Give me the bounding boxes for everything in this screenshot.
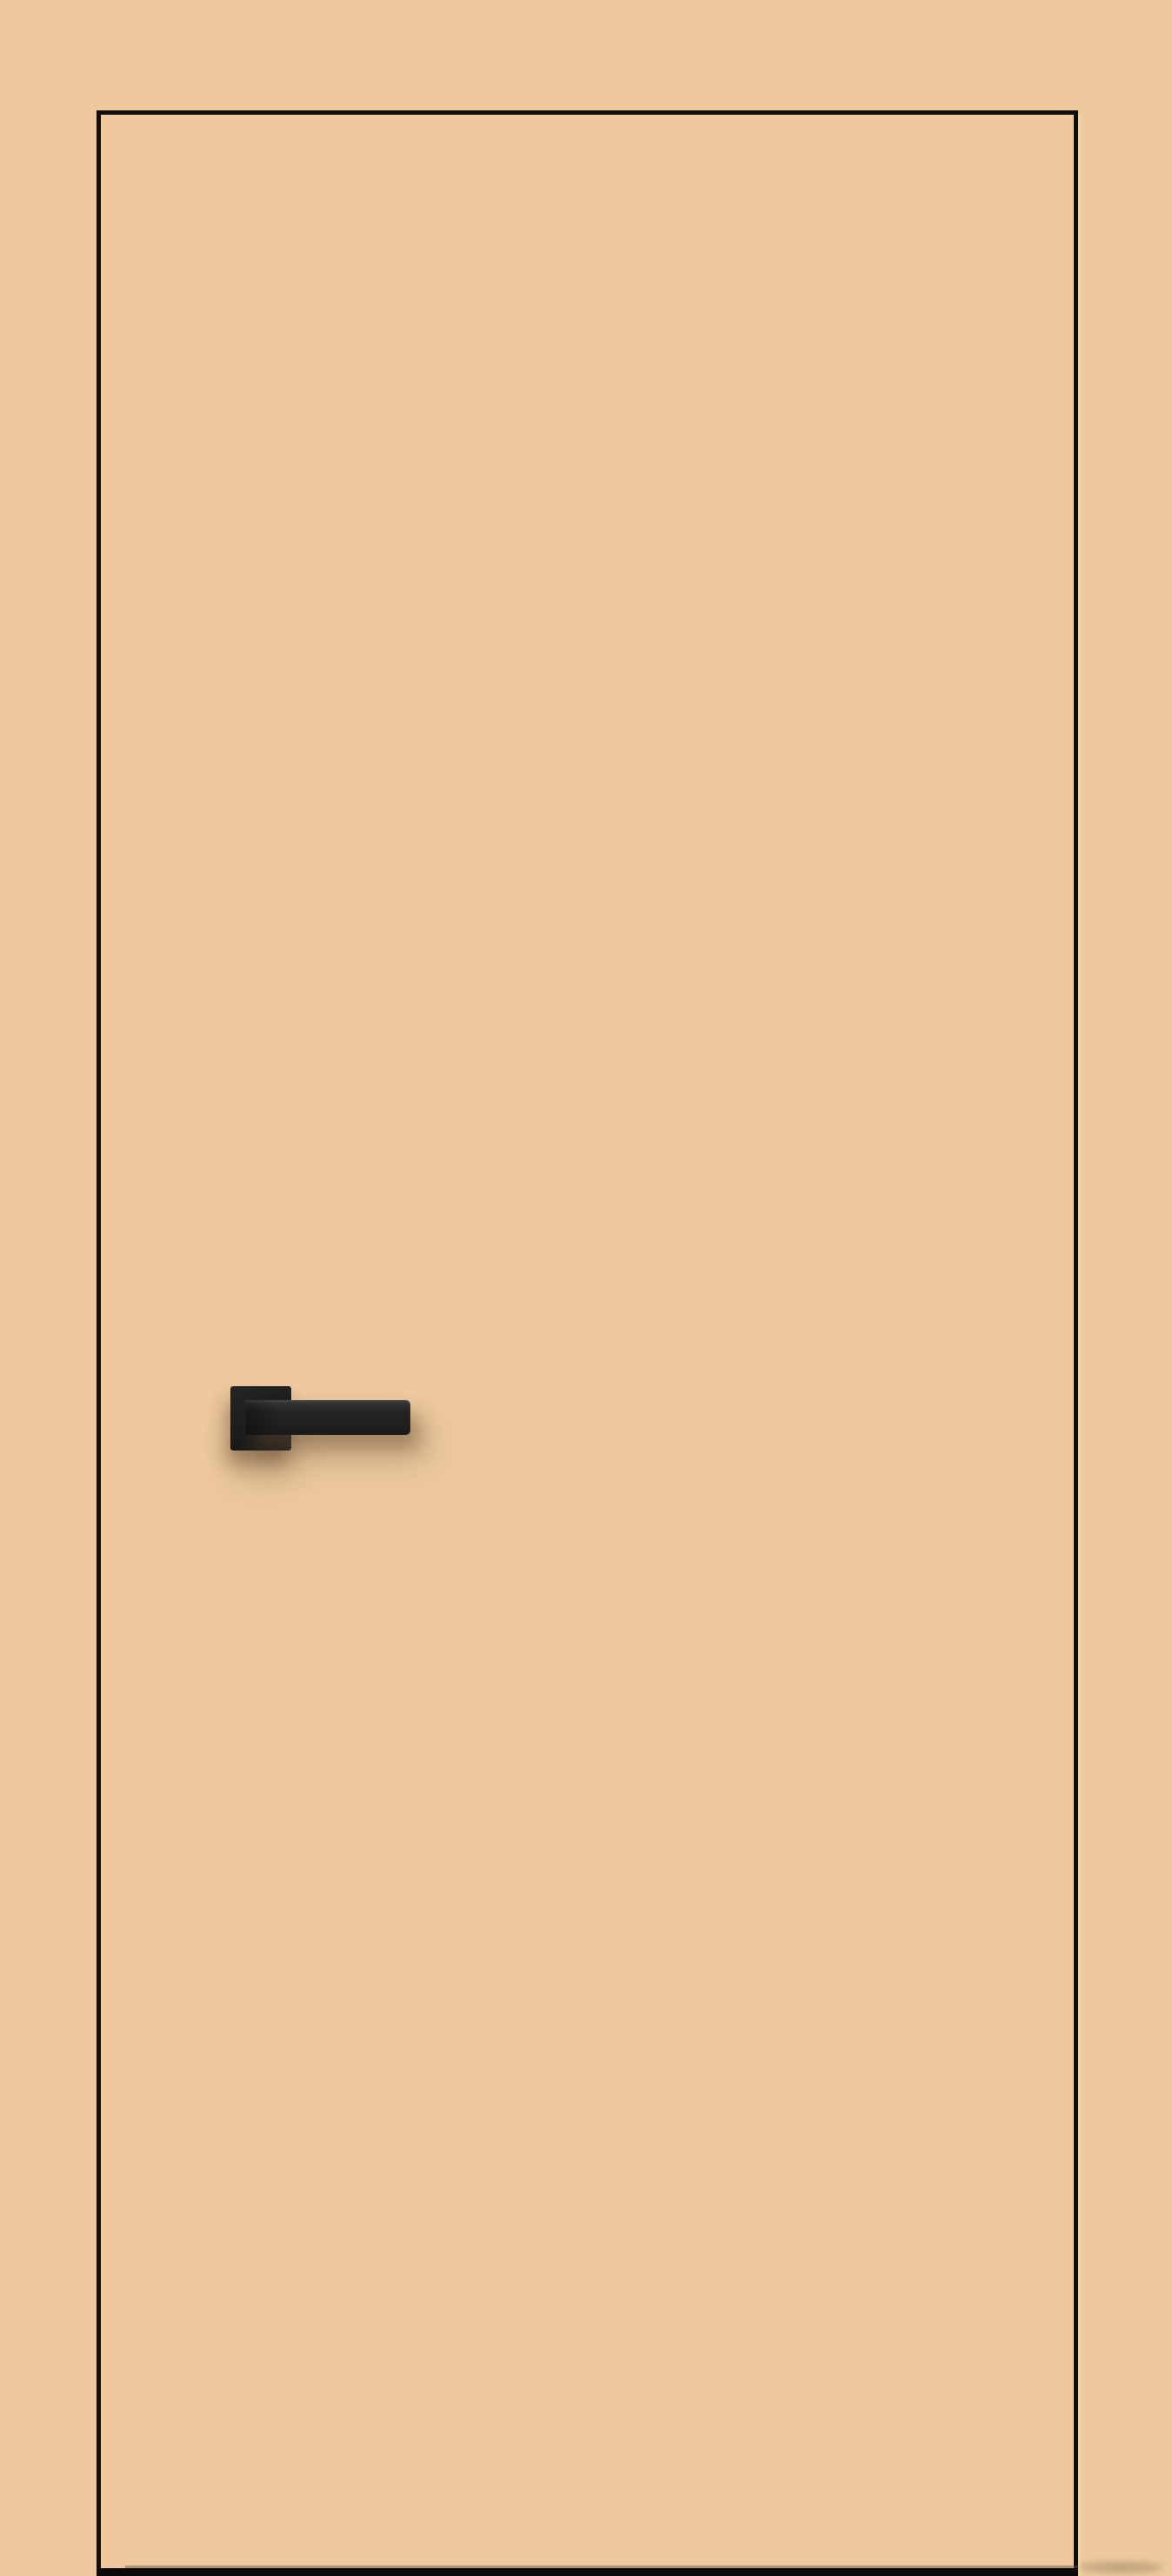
door-bottom-edge [97,2568,1078,2576]
floor-shadow [1080,2562,1163,2573]
door-product-screenshot: { "scene": { "type": "product-render", "… [0,0,1172,2576]
wall-background [0,0,1172,2576]
handle-lever [245,1400,410,1435]
door-edge-highlight [1078,115,1081,2576]
door-panel [97,110,1078,2576]
door-handle [230,1386,430,1482]
